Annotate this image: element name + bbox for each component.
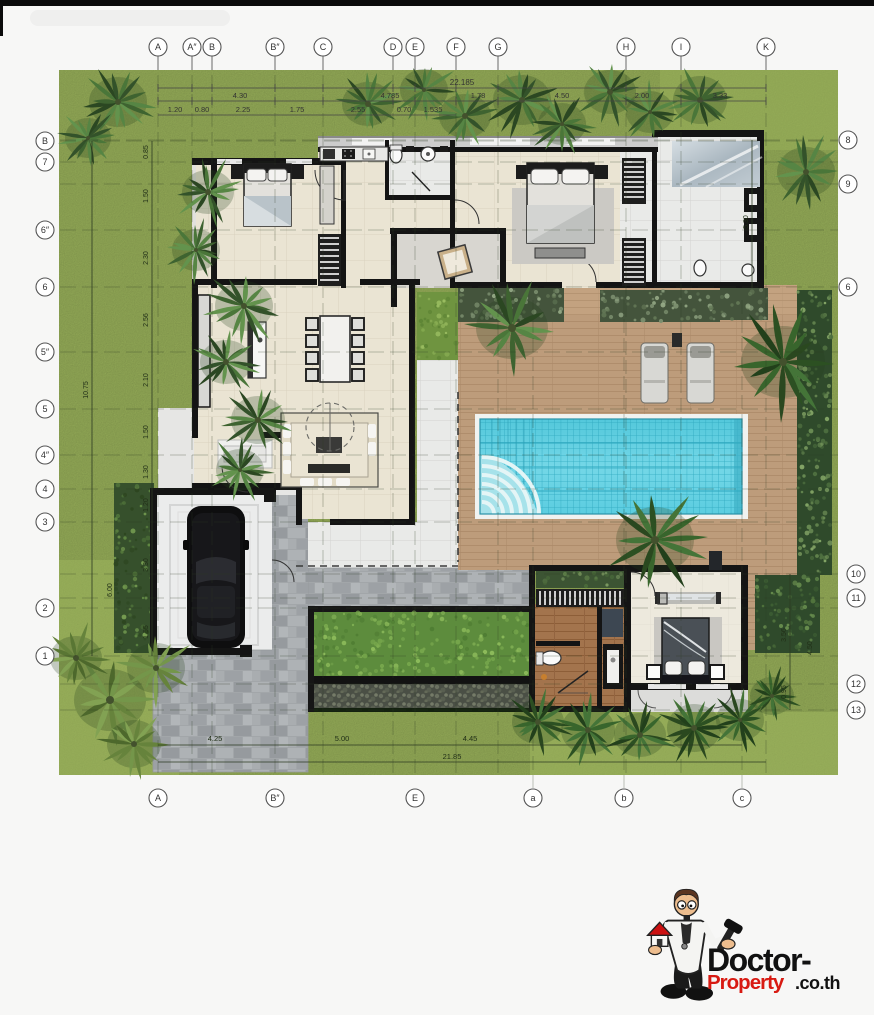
svg-text:4.50: 4.50 — [807, 641, 814, 655]
svg-text:9: 9 — [845, 179, 850, 189]
svg-text:0.85: 0.85 — [143, 145, 150, 159]
svg-text:22.185: 22.185 — [450, 78, 475, 87]
svg-text:B: B — [209, 42, 215, 52]
svg-text:0.70: 0.70 — [397, 105, 412, 114]
svg-text:2.00: 2.00 — [635, 91, 650, 100]
svg-text:2.56: 2.56 — [143, 313, 150, 327]
svg-text:2.10: 2.10 — [143, 373, 150, 387]
svg-text:3.30: 3.30 — [143, 558, 150, 572]
svg-text:b: b — [621, 793, 626, 803]
svg-text:5.00: 5.00 — [335, 734, 350, 743]
svg-text:1.535: 1.535 — [424, 105, 443, 114]
svg-text:F: F — [453, 42, 459, 52]
svg-text:H: H — [623, 42, 630, 52]
svg-text:.co.th: .co.th — [795, 973, 840, 993]
svg-text:2.30: 2.30 — [143, 251, 150, 265]
svg-text:3: 3 — [42, 517, 47, 527]
svg-text:1.50: 1.50 — [143, 425, 150, 439]
svg-text:10: 10 — [851, 569, 861, 579]
svg-text:A″: A″ — [187, 42, 197, 52]
svg-text:5: 5 — [42, 404, 47, 414]
svg-text:I: I — [680, 42, 683, 52]
svg-text:6: 6 — [42, 282, 47, 292]
svg-text:1.50: 1.50 — [143, 189, 150, 203]
svg-text:0.80: 0.80 — [195, 105, 210, 114]
svg-text:c: c — [740, 793, 745, 803]
svg-text:A: A — [155, 42, 161, 52]
svg-text:B″: B″ — [270, 42, 280, 52]
svg-text:4″: 4″ — [41, 450, 50, 460]
svg-text:E: E — [412, 42, 418, 52]
svg-text:1.30: 1.30 — [143, 465, 150, 479]
svg-text:2.25: 2.25 — [236, 105, 251, 114]
svg-text:E: E — [412, 793, 418, 803]
svg-text:K: K — [763, 42, 769, 52]
svg-text:a: a — [530, 793, 535, 803]
svg-text:11: 11 — [851, 593, 860, 603]
svg-text:6″: 6″ — [41, 225, 50, 235]
svg-text:12: 12 — [851, 679, 861, 689]
svg-text:1.78: 1.78 — [471, 91, 486, 100]
svg-text:G: G — [494, 42, 501, 52]
svg-text:13: 13 — [851, 705, 861, 715]
svg-text:4.785: 4.785 — [381, 91, 400, 100]
svg-text:Property: Property — [707, 971, 785, 994]
svg-text:A: A — [155, 793, 161, 803]
svg-text:8: 8 — [845, 135, 850, 145]
svg-text:1.20: 1.20 — [168, 105, 183, 114]
svg-text:5.30: 5.30 — [743, 215, 750, 229]
svg-text:1.20: 1.20 — [143, 498, 150, 512]
svg-text:4: 4 — [42, 484, 47, 494]
svg-text:D: D — [390, 42, 397, 52]
svg-text:4.25: 4.25 — [208, 734, 223, 743]
svg-text:2: 2 — [42, 603, 47, 613]
svg-text:4.30: 4.30 — [233, 91, 248, 100]
svg-text:C: C — [320, 42, 327, 52]
svg-text:5″: 5″ — [41, 347, 50, 357]
svg-text:6.00: 6.00 — [107, 583, 114, 597]
svg-text:B″: B″ — [270, 793, 280, 803]
svg-text:1.55: 1.55 — [143, 625, 150, 639]
svg-text:1: 1 — [42, 651, 47, 661]
svg-text:2.55: 2.55 — [351, 105, 366, 114]
svg-text:7: 7 — [42, 157, 47, 167]
svg-text:10.75: 10.75 — [83, 381, 90, 399]
svg-text:3.56: 3.56 — [781, 628, 788, 642]
svg-text:4.45: 4.45 — [463, 734, 478, 743]
svg-text:0.95: 0.95 — [781, 685, 788, 699]
svg-text:B: B — [42, 136, 48, 146]
svg-text:4.50: 4.50 — [555, 91, 570, 100]
svg-text:3.33: 3.33 — [713, 91, 728, 100]
svg-text:6: 6 — [845, 282, 850, 292]
svg-text:1.75: 1.75 — [290, 105, 305, 114]
svg-text:21.85: 21.85 — [443, 752, 462, 761]
